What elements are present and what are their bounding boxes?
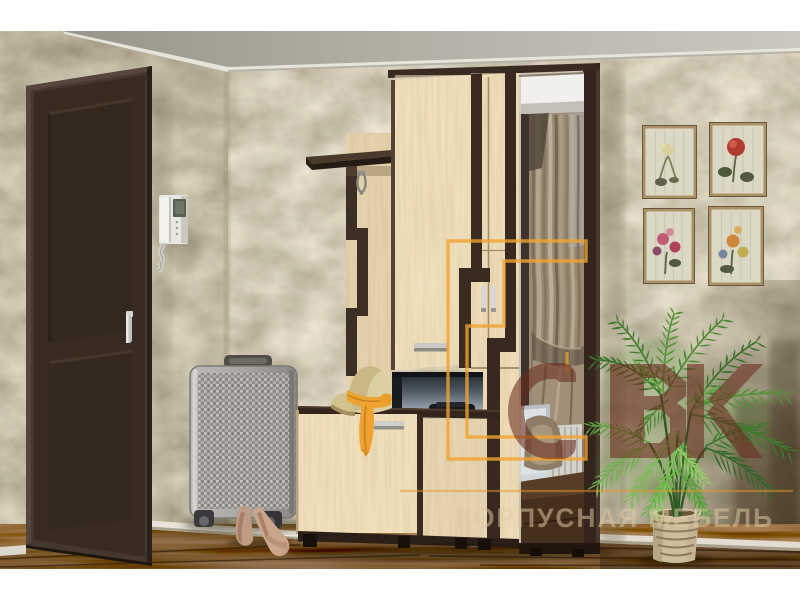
svg-text:КОРПУСНАЯ МЕБЕЛЬ: КОРПУСНАЯ МЕБЕЛЬ <box>456 503 774 533</box>
